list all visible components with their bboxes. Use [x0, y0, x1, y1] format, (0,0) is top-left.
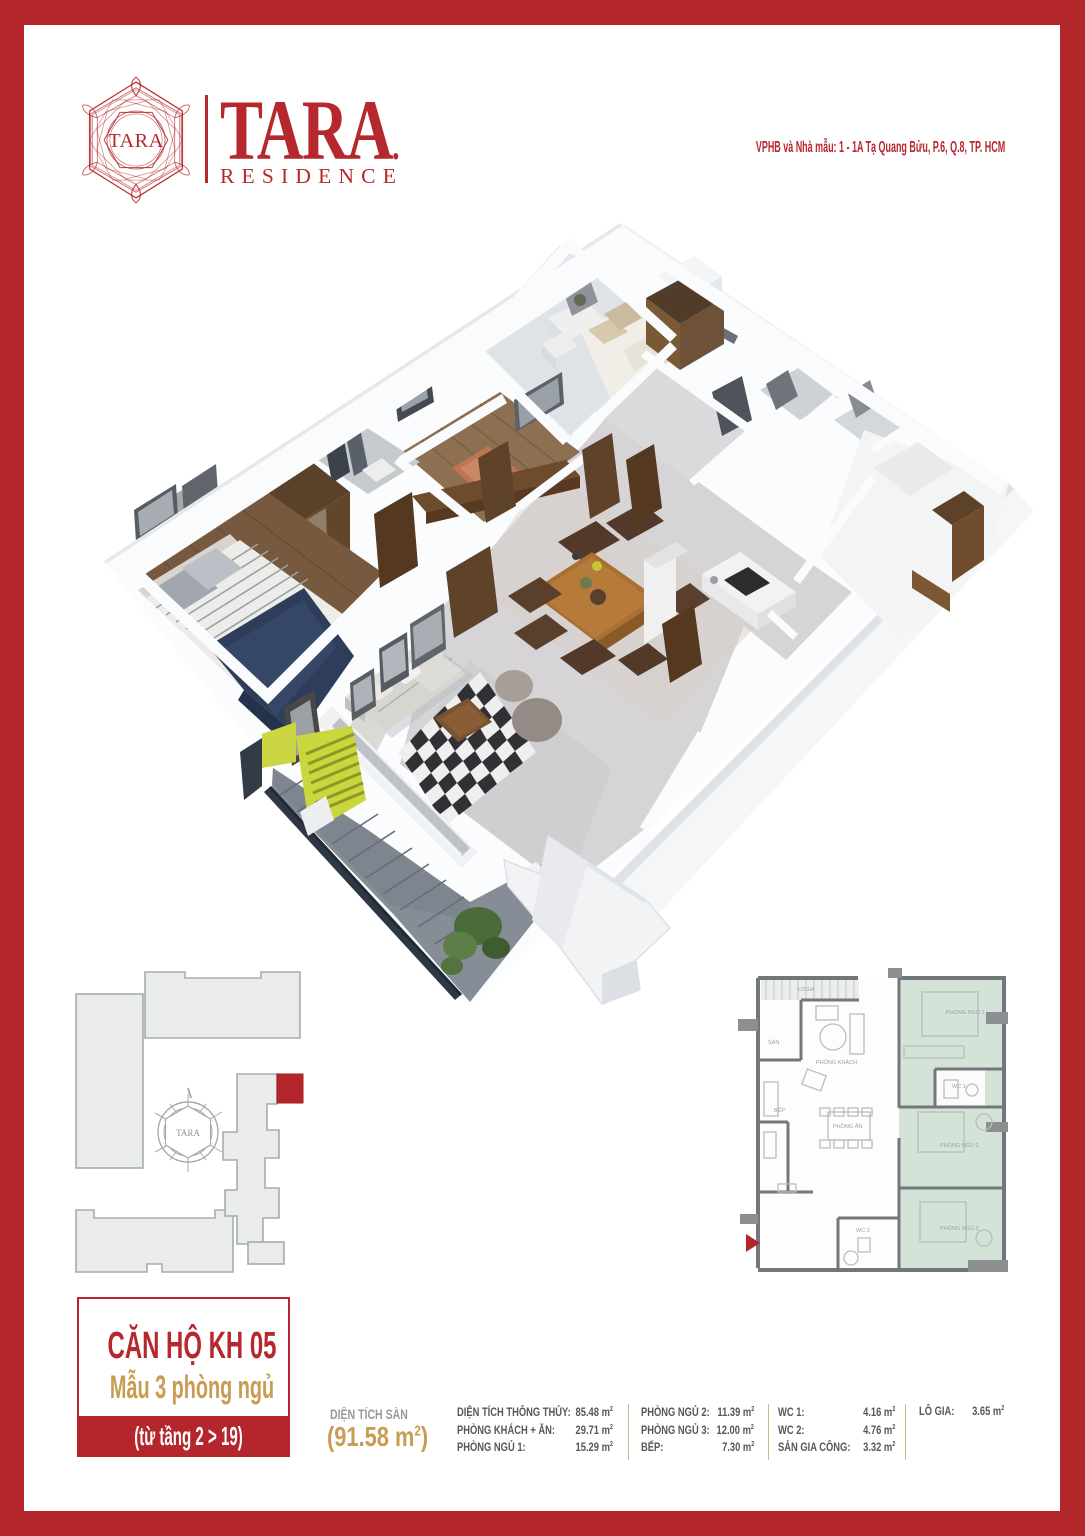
svg-text:PHÒNG NGỦ 2: PHÒNG NGỦ 2 — [940, 1142, 979, 1149]
svg-text:PHÒNG KHÁCH: PHÒNG KHÁCH — [816, 1059, 857, 1066]
svg-text:BẾP: BẾP — [774, 1107, 785, 1114]
svg-text:SẢN: SẢN — [768, 1039, 779, 1046]
svg-text:PHÒNG NGỦ 3: PHÒNG NGỦ 3 — [940, 1225, 979, 1232]
svg-text:WC 1: WC 1 — [952, 1084, 966, 1090]
svg-text:TARA: TARA — [176, 1128, 200, 1138]
svg-text:LOGIA: LOGIA — [798, 987, 815, 993]
svg-text:PHÒNG ĂN: PHÒNG ĂN — [833, 1123, 862, 1130]
svg-text:PHÒNG NGỦ 1: PHÒNG NGỦ 1 — [946, 1009, 985, 1016]
svg-text:WC 2: WC 2 — [856, 1228, 870, 1234]
